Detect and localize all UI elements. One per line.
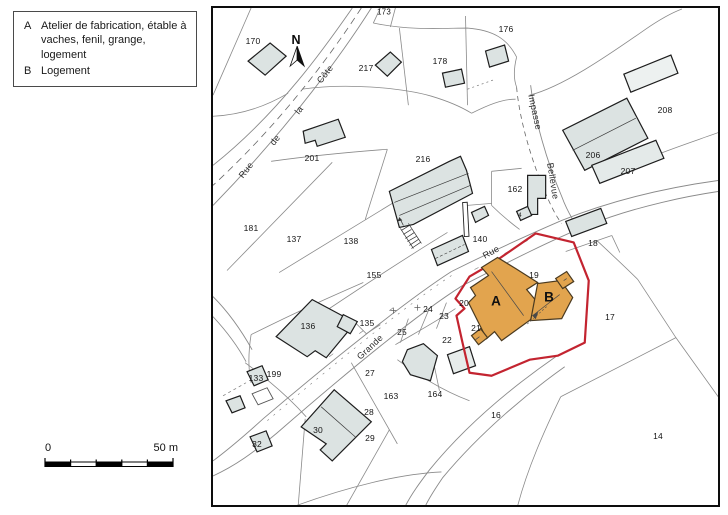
building-162a bbox=[528, 175, 546, 214]
legend-item-A: AAtelier de fabrication, étable à vaches… bbox=[24, 19, 188, 62]
scale-bar: 0 50 m bbox=[44, 442, 178, 474]
building-32 bbox=[250, 431, 272, 452]
legend-key: B bbox=[24, 64, 39, 78]
scale-start-label: 0 bbox=[45, 442, 51, 454]
building-30 bbox=[301, 390, 371, 461]
building-22a bbox=[402, 344, 437, 381]
cadastral-map: 1731702171781762012162082062071621811371… bbox=[211, 6, 720, 507]
building-208 bbox=[624, 55, 678, 92]
building-133 bbox=[247, 366, 268, 386]
building-22b bbox=[447, 347, 475, 374]
unfilled-buildings bbox=[252, 388, 273, 405]
building-small-140 bbox=[472, 206, 489, 222]
scale-end-label: 50 m bbox=[154, 442, 178, 454]
road-dashed-centerlines bbox=[213, 8, 562, 223]
legend-rows: AAtelier de fabrication, étable à vaches… bbox=[24, 19, 188, 78]
building-178 bbox=[442, 69, 464, 87]
buildings bbox=[226, 43, 678, 461]
legend-item-B: BLogement bbox=[24, 64, 188, 78]
building-216 bbox=[389, 156, 472, 227]
building-170 bbox=[248, 43, 286, 75]
highlighted-buildings bbox=[469, 258, 574, 345]
legend-key: A bbox=[24, 19, 39, 62]
legend-box: AAtelier de fabrication, étable à vaches… bbox=[13, 11, 197, 87]
legend-text: Atelier de fabrication, étable à vaches,… bbox=[41, 19, 188, 62]
scale-bar-graphic bbox=[44, 458, 174, 469]
building-near-133 bbox=[226, 396, 245, 413]
north-arrow-icon bbox=[290, 46, 304, 66]
building-176 bbox=[486, 45, 509, 67]
building-217 bbox=[375, 52, 401, 76]
legend-text: Logement bbox=[41, 64, 188, 78]
page: { "legend": { "items": [ {"key": "A", "t… bbox=[0, 0, 728, 515]
cadastral-map-drawing bbox=[213, 8, 718, 505]
building-201 bbox=[303, 119, 345, 146]
building-18 bbox=[566, 208, 607, 236]
building-140 bbox=[431, 235, 468, 265]
